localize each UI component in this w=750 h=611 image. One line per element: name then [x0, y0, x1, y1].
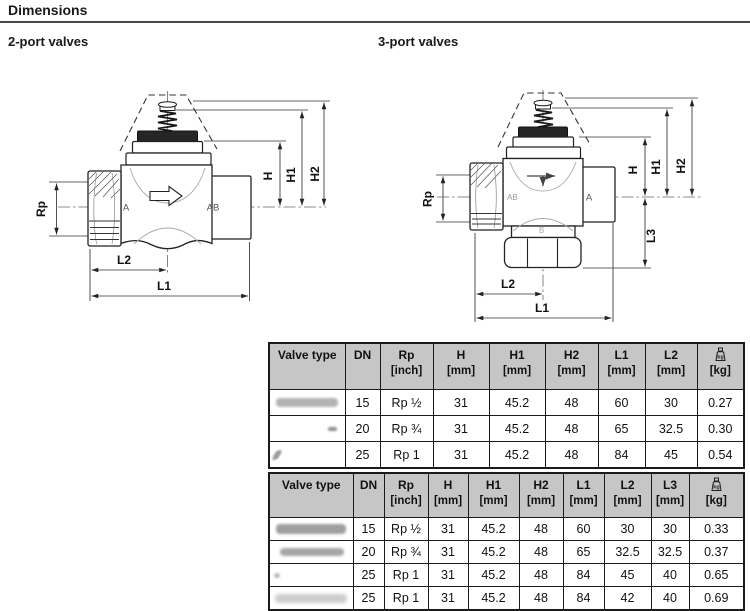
valve-type-cell [269, 518, 353, 541]
col-header-h2: H2[mm] [545, 343, 598, 390]
redacted-valve-name [276, 398, 338, 407]
table-cell: 42 [604, 587, 651, 611]
table-row: 25Rp 13145.24884450.54 [269, 442, 744, 469]
col-header-l2: L2[mm] [645, 343, 697, 390]
valve-type-cell [269, 564, 353, 587]
col-header-valve-type: Valve type [269, 473, 353, 518]
port-label-ab: AB [207, 203, 220, 214]
table-cell: 84 [598, 442, 645, 469]
table-cell: 48 [519, 587, 563, 611]
table-cell: 31 [433, 416, 489, 442]
table-cell: 45 [645, 442, 697, 469]
dim-label-h1: H1 [284, 167, 298, 183]
table-cell: 15 [345, 390, 380, 416]
redacted-valve-name [280, 548, 344, 556]
dim-label-l1: L1 [157, 279, 171, 293]
table-cell: Rp ¾ [384, 541, 428, 564]
bonnet-neck [133, 142, 203, 154]
valve-type-cell [269, 442, 345, 469]
two-port-table-body: 15Rp ½3145.24860300.2720Rp ¾3145.2486532… [269, 390, 744, 469]
redacted-valve-name [275, 594, 347, 603]
dim-label-l3: L3 [644, 229, 658, 243]
table-cell: 20 [353, 541, 384, 564]
col-header-valve-type: Valve type [269, 343, 345, 390]
col-header-l1: L1[mm] [563, 473, 604, 518]
table-cell: 48 [519, 541, 563, 564]
bonnet-flange [126, 153, 211, 165]
valve-type-cell [269, 587, 353, 611]
dim-label-h2: H2 [674, 158, 688, 174]
redacted-valve-name [328, 427, 337, 431]
col-header-h2: H2[mm] [519, 473, 563, 518]
table-row: 25Rp 13145.2488445400.65 [269, 564, 744, 587]
table-cell: 45.2 [489, 390, 545, 416]
col-header-l1: L1[mm] [598, 343, 645, 390]
port-label-a: A [123, 203, 130, 214]
stem-cap [138, 131, 198, 142]
table-cell: 45 [604, 564, 651, 587]
table-cell: 84 [563, 564, 604, 587]
two-port-section-heading: 2-port valves [8, 34, 88, 49]
table-cell: 0.27 [697, 390, 744, 416]
valve-type-cell [269, 390, 345, 416]
stem-spring [534, 100, 553, 127]
table-cell: 0.54 [697, 442, 744, 469]
table-cell: 31 [428, 541, 468, 564]
table-cell: Rp ½ [384, 518, 428, 541]
table-cell: 60 [563, 518, 604, 541]
table-cell: 84 [563, 587, 604, 611]
table-row: 25Rp 13145.2488442400.69 [269, 587, 744, 611]
three-port-table-body: 15Rp ½3145.2486030300.3320Rp ¾3145.24865… [269, 518, 744, 611]
table-cell: 25 [353, 587, 384, 611]
table-cell: Rp 1 [384, 564, 428, 587]
table-cell: 48 [545, 390, 598, 416]
table-cell: 45.2 [468, 587, 519, 611]
table-cell: 25 [345, 442, 380, 469]
table-cell: 31 [433, 390, 489, 416]
table-cell: 45.2 [468, 564, 519, 587]
two-port-dimensions-table: Valve type DN Rp[inch] H[mm] H1[mm] H2[m… [268, 342, 745, 469]
dim-label-h2: H2 [308, 166, 322, 182]
dim-label-l2: L2 [117, 253, 131, 267]
col-header-weight: kg [kg] [689, 473, 744, 518]
table-cell: Rp ½ [380, 390, 433, 416]
valve-type-cell [269, 541, 353, 564]
table-cell: 60 [598, 390, 645, 416]
title-divider [0, 21, 750, 23]
table-cell: 65 [598, 416, 645, 442]
dim-label-h: H [626, 166, 640, 175]
table-cell: 45.2 [489, 416, 545, 442]
table-row: 15Rp ½3145.2486030300.33 [269, 518, 744, 541]
table-cell: 20 [345, 416, 380, 442]
three-port-section-heading: 3-port valves [378, 34, 458, 49]
stem-cap [519, 127, 568, 137]
col-header-rp: Rp[inch] [384, 473, 428, 518]
table-cell: 40 [651, 564, 689, 587]
table-header-row: Valve type DN Rp[inch] H[mm] H1[mm] H2[m… [269, 473, 744, 518]
table-cell: 48 [519, 518, 563, 541]
table-cell: 0.33 [689, 518, 744, 541]
table-cell: 48 [545, 442, 598, 469]
col-header-h1: H1[mm] [489, 343, 545, 390]
table-cell: 32.5 [604, 541, 651, 564]
table-cell: 0.69 [689, 587, 744, 611]
weight-icon: kg [714, 347, 727, 362]
dim-label-l1: L1 [535, 301, 549, 315]
dim-label-rp: Rp [34, 201, 48, 217]
datasheet-page: Dimensions 2-port valves 3-port valves [0, 0, 750, 611]
valve-type-cell [269, 416, 345, 442]
table-cell: 30 [651, 518, 689, 541]
bonnet-flange [507, 147, 581, 159]
dim-label-h1: H1 [649, 159, 663, 175]
dim-label-l2: L2 [501, 277, 515, 291]
table-cell: 45.2 [489, 442, 545, 469]
three-port-dimensions-table: Valve type DN Rp[inch] H[mm] H1[mm] H2[m… [268, 472, 745, 611]
port-label-b: B [539, 226, 544, 235]
three-port-valve-diagram: AB A B Rp H H1 H2 L3 L2 L1 [395, 78, 725, 330]
table-cell: 0.30 [697, 416, 744, 442]
bonnet-neck [513, 137, 574, 148]
col-header-weight: kg [kg] [697, 343, 744, 390]
table-cell: 32.5 [651, 541, 689, 564]
page-title: Dimensions [8, 2, 87, 18]
weight-icon: kg [710, 477, 723, 492]
port-label-a: A [586, 193, 593, 204]
svg-text:kg: kg [717, 355, 723, 361]
dim-label-h: H [261, 172, 275, 181]
redacted-valve-name [274, 573, 280, 578]
table-cell: Rp ¾ [380, 416, 433, 442]
col-header-l2: L2[mm] [604, 473, 651, 518]
two-port-valve-diagram: A AB Rp H H1 H2 L2 L1 [0, 78, 345, 310]
table-cell: 31 [428, 518, 468, 541]
col-header-dn: DN [345, 343, 380, 390]
table-cell: 32.5 [645, 416, 697, 442]
col-header-h1: H1[mm] [468, 473, 519, 518]
table-cell: 31 [433, 442, 489, 469]
redacted-valve-name [276, 524, 346, 534]
table-cell: 45.2 [468, 518, 519, 541]
table-cell: Rp 1 [384, 587, 428, 611]
table-row: 20Rp ¾3145.2486532.532.50.37 [269, 541, 744, 564]
table-cell: 0.65 [689, 564, 744, 587]
col-header-l3: L3[mm] [651, 473, 689, 518]
table-cell: 30 [604, 518, 651, 541]
port-label-ab: AB [507, 193, 518, 202]
table-row: 20Rp ¾3145.2486532.50.30 [269, 416, 744, 442]
table-cell: 48 [545, 416, 598, 442]
table-cell: 45.2 [468, 541, 519, 564]
table-cell: 40 [651, 587, 689, 611]
table-cell: 31 [428, 564, 468, 587]
col-header-h: H[mm] [433, 343, 489, 390]
col-header-rp: Rp[inch] [380, 343, 433, 390]
table-header-row: Valve type DN Rp[inch] H[mm] H1[mm] H2[m… [269, 343, 744, 390]
table-cell: Rp 1 [380, 442, 433, 469]
col-header-dn: DN [353, 473, 384, 518]
table-cell: 25 [353, 564, 384, 587]
table-row: 15Rp ½3145.24860300.27 [269, 390, 744, 416]
table-cell: 0.37 [689, 541, 744, 564]
table-cell: 15 [353, 518, 384, 541]
table-cell: 48 [519, 564, 563, 587]
svg-text:kg: kg [713, 485, 719, 491]
table-cell: 31 [428, 587, 468, 611]
redacted-valve-name [271, 450, 282, 460]
bottom-hex-nut [505, 238, 582, 268]
table-cell: 30 [645, 390, 697, 416]
table-cell: 65 [563, 541, 604, 564]
col-header-h: H[mm] [428, 473, 468, 518]
dim-label-rp: Rp [421, 191, 435, 207]
